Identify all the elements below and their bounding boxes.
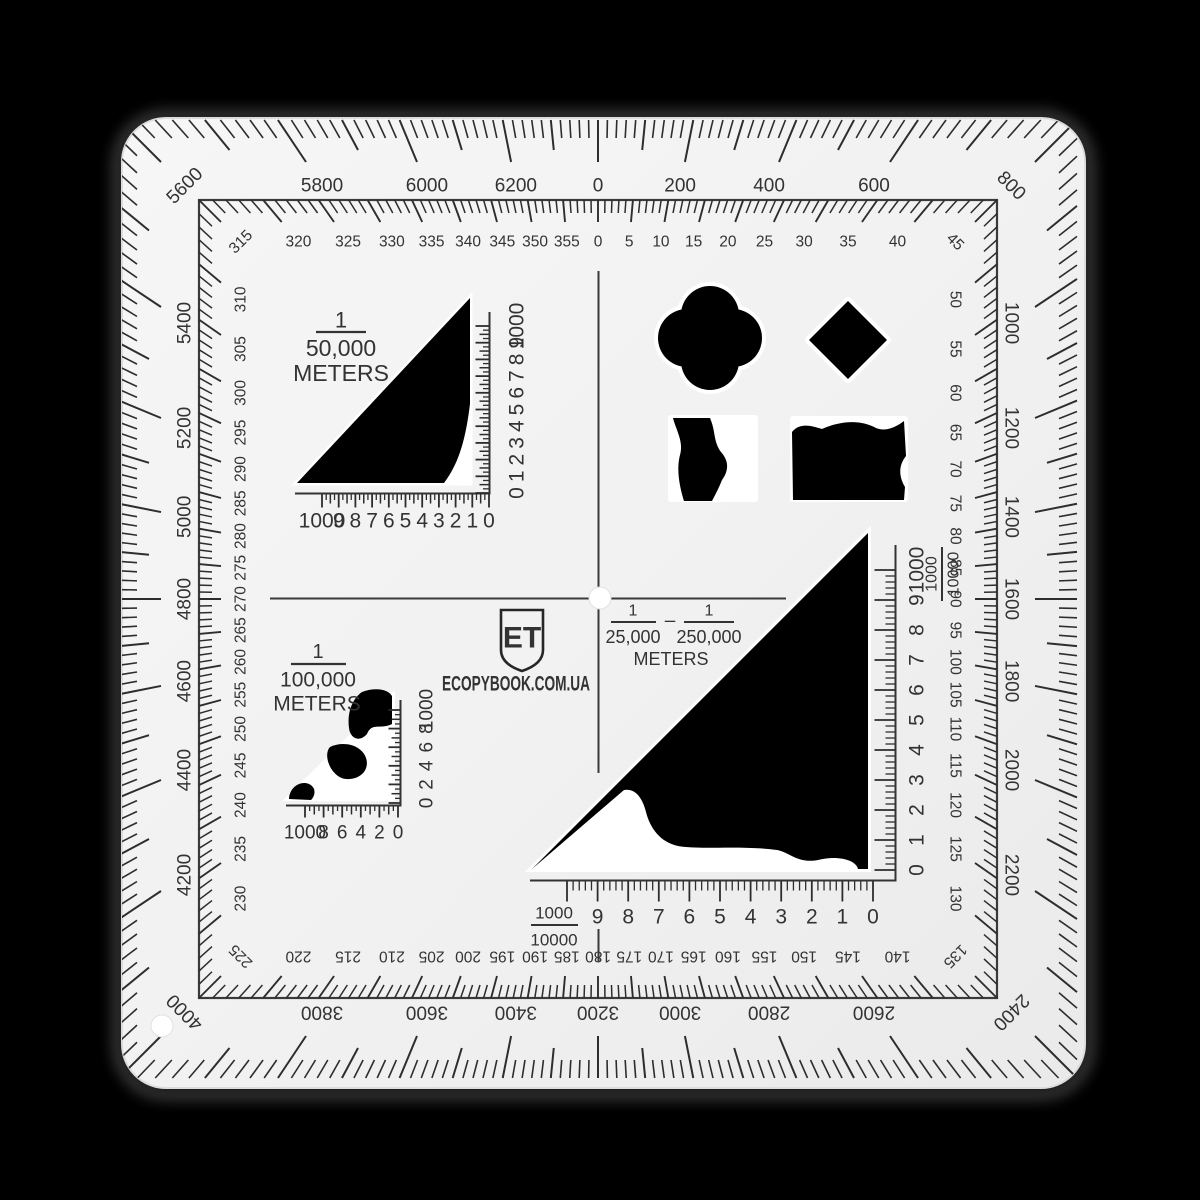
svg-text:6: 6 [684,906,696,929]
corner-hole [151,1015,173,1037]
svg-text:200: 200 [664,176,696,197]
svg-text:1800: 1800 [1001,660,1022,702]
svg-text:40: 40 [889,234,907,251]
scale-25k-unit-label: METERS [633,649,708,669]
svg-text:5200: 5200 [175,407,196,449]
svg-text:4800: 4800 [175,578,196,620]
svg-text:285: 285 [233,490,250,516]
svg-text:25: 25 [756,234,773,251]
svg-text:1: 1 [837,906,849,929]
svg-text:6000: 6000 [406,176,448,197]
svg-text:7: 7 [366,510,378,533]
svg-text:50: 50 [947,291,964,309]
scale-10k-v-fraction-denominator: 10000 [946,552,963,597]
svg-text:120: 120 [947,792,964,818]
svg-text:245: 245 [233,753,250,779]
svg-text:2200: 2200 [1001,854,1022,896]
svg-text:4: 4 [506,420,529,432]
svg-text:2: 2 [450,510,462,533]
svg-text:1000: 1000 [506,303,529,350]
svg-text:175: 175 [616,948,642,965]
svg-text:105: 105 [947,682,964,708]
svg-text:6: 6 [506,387,529,399]
svg-text:3: 3 [433,510,445,533]
svg-text:3: 3 [775,906,787,929]
scale-50k-unit-label: METERS [293,360,389,386]
svg-text:65: 65 [947,424,964,441]
scale-dash: – [665,611,676,632]
scale-250k-denominator: 250,000 [676,627,741,647]
svg-text:1200: 1200 [1001,407,1022,449]
scale-10k-v-fraction-numerator: 1000 [924,556,941,592]
scale-50k-denominator: 50,000 [306,335,376,361]
center-hole [589,587,611,609]
svg-text:7: 7 [506,370,529,382]
svg-text:270: 270 [233,586,250,612]
svg-text:310: 310 [233,286,250,312]
svg-text:3: 3 [506,437,529,449]
svg-text:230: 230 [233,885,250,911]
svg-text:6: 6 [906,684,929,696]
svg-text:335: 335 [419,234,445,251]
svg-text:0: 0 [593,176,604,197]
svg-text:280: 280 [233,523,250,549]
svg-text:1: 1 [506,470,529,482]
svg-text:2: 2 [906,804,929,816]
scale-25k-denominator: 25,000 [605,627,660,647]
svg-text:0: 0 [906,864,929,876]
scale-100k-unit-label: METERS [273,693,361,716]
svg-text:4600: 4600 [175,660,196,702]
svg-text:6: 6 [383,510,395,533]
svg-text:295: 295 [233,420,250,446]
svg-text:155: 155 [752,948,778,965]
svg-text:1: 1 [906,834,929,846]
svg-text:0: 0 [393,823,404,844]
svg-text:125: 125 [947,836,964,862]
svg-text:4: 4 [906,744,929,756]
svg-text:8: 8 [506,354,529,366]
svg-text:5: 5 [714,906,726,929]
svg-text:4: 4 [416,510,428,533]
svg-text:2800: 2800 [748,1002,790,1023]
svg-text:15: 15 [685,234,702,251]
svg-text:6: 6 [417,742,438,753]
svg-text:255: 255 [233,682,250,708]
svg-text:3200: 3200 [577,1002,619,1023]
svg-text:290: 290 [233,456,250,482]
svg-text:9: 9 [906,594,929,606]
svg-text:140: 140 [884,948,910,965]
svg-text:1600: 1600 [1001,578,1022,620]
svg-text:235: 235 [233,836,250,862]
svg-text:150: 150 [791,948,817,965]
svg-text:205: 205 [419,948,445,965]
svg-text:2600: 2600 [853,1002,895,1023]
svg-text:7: 7 [653,906,665,929]
svg-text:6: 6 [337,823,348,844]
svg-text:9: 9 [333,510,345,533]
svg-text:340: 340 [455,234,481,251]
svg-text:3800: 3800 [301,1002,343,1023]
svg-text:5000: 5000 [175,496,196,538]
svg-text:250: 250 [233,716,250,742]
svg-text:200: 200 [455,948,481,965]
svg-text:2: 2 [374,823,385,844]
svg-text:80: 80 [947,527,964,545]
svg-text:400: 400 [753,176,785,197]
svg-text:4400: 4400 [175,749,196,791]
svg-text:130: 130 [947,886,964,912]
svg-text:8: 8 [622,906,634,929]
scale-10k-h-fraction-numerator: 1000 [535,904,573,923]
svg-text:215: 215 [335,948,361,965]
svg-text:160: 160 [715,948,741,965]
svg-text:10: 10 [652,234,670,251]
svg-text:5: 5 [400,510,412,533]
scale-10k-h-fraction-denominator: 10000 [530,931,577,950]
svg-text:145: 145 [835,948,861,965]
svg-text:220: 220 [285,948,311,965]
svg-text:0: 0 [483,510,495,533]
scale-100k-numerator: 1 [312,641,323,663]
svg-text:60: 60 [947,384,964,402]
scale-250k-numerator: 1 [705,603,714,620]
svg-text:55: 55 [947,340,964,357]
svg-text:20: 20 [719,234,737,251]
svg-text:165: 165 [681,948,707,965]
svg-text:275: 275 [233,555,250,581]
svg-text:30: 30 [795,234,813,251]
svg-text:195: 195 [489,948,515,965]
svg-text:350: 350 [522,234,548,251]
svg-text:355: 355 [554,234,580,251]
svg-text:305: 305 [233,336,250,362]
svg-text:0: 0 [506,487,529,499]
svg-text:210: 210 [379,948,405,965]
svg-text:8: 8 [906,624,929,636]
svg-text:100: 100 [947,649,964,675]
svg-text:4: 4 [356,823,367,844]
logo-letters: ET [503,622,541,655]
svg-text:260: 260 [233,649,250,675]
svg-text:9: 9 [592,906,604,929]
website-label: ECOPYBOOK.COM.UA [442,673,590,696]
scale-25k-numerator: 1 [629,603,638,620]
svg-text:1000: 1000 [1001,302,1022,344]
svg-text:5800: 5800 [301,176,343,197]
svg-text:190: 190 [522,948,548,965]
svg-text:320: 320 [286,234,312,251]
svg-text:0: 0 [594,234,603,251]
square-window-cutout [668,415,758,502]
protractor-photo: 0200400600800100012001400160018002000220… [0,0,1200,1200]
svg-text:5: 5 [625,234,634,251]
svg-text:110: 110 [947,717,964,742]
svg-text:2: 2 [417,779,438,790]
svg-text:6200: 6200 [495,176,537,197]
svg-text:0: 0 [417,798,438,809]
svg-text:2: 2 [506,454,529,466]
svg-text:325: 325 [335,234,361,251]
svg-text:7: 7 [906,654,929,666]
svg-text:3400: 3400 [495,1002,537,1023]
svg-text:1000: 1000 [417,689,438,731]
svg-text:8: 8 [318,823,329,844]
svg-text:1400: 1400 [1001,496,1022,538]
svg-text:3: 3 [906,774,929,786]
svg-text:600: 600 [858,176,890,197]
svg-text:345: 345 [489,234,515,251]
svg-text:2000: 2000 [1001,749,1022,791]
svg-text:4200: 4200 [175,854,196,896]
svg-text:330: 330 [379,234,405,251]
svg-text:115: 115 [947,753,964,778]
svg-text:3600: 3600 [406,1002,448,1023]
scale-100k-denominator: 100,000 [280,669,356,692]
svg-text:5: 5 [506,404,529,416]
scale-50k-numerator: 1 [335,308,347,333]
svg-text:240: 240 [233,792,250,818]
svg-text:70: 70 [947,460,964,478]
svg-text:4: 4 [745,906,757,929]
rect-window-cutout [790,416,908,502]
svg-text:3000: 3000 [659,1002,701,1023]
svg-text:265: 265 [233,617,250,643]
svg-text:5: 5 [906,714,929,726]
svg-text:75: 75 [947,495,964,512]
svg-text:300: 300 [233,380,250,406]
svg-text:2: 2 [806,906,818,929]
svg-text:0: 0 [867,906,879,929]
svg-text:8: 8 [350,510,362,533]
svg-text:1: 1 [466,510,478,533]
svg-text:4: 4 [417,760,438,771]
svg-text:95: 95 [947,622,964,639]
svg-text:35: 35 [839,234,856,251]
svg-text:170: 170 [648,948,674,965]
svg-text:5400: 5400 [175,302,196,344]
svg-text:185: 185 [554,948,580,965]
